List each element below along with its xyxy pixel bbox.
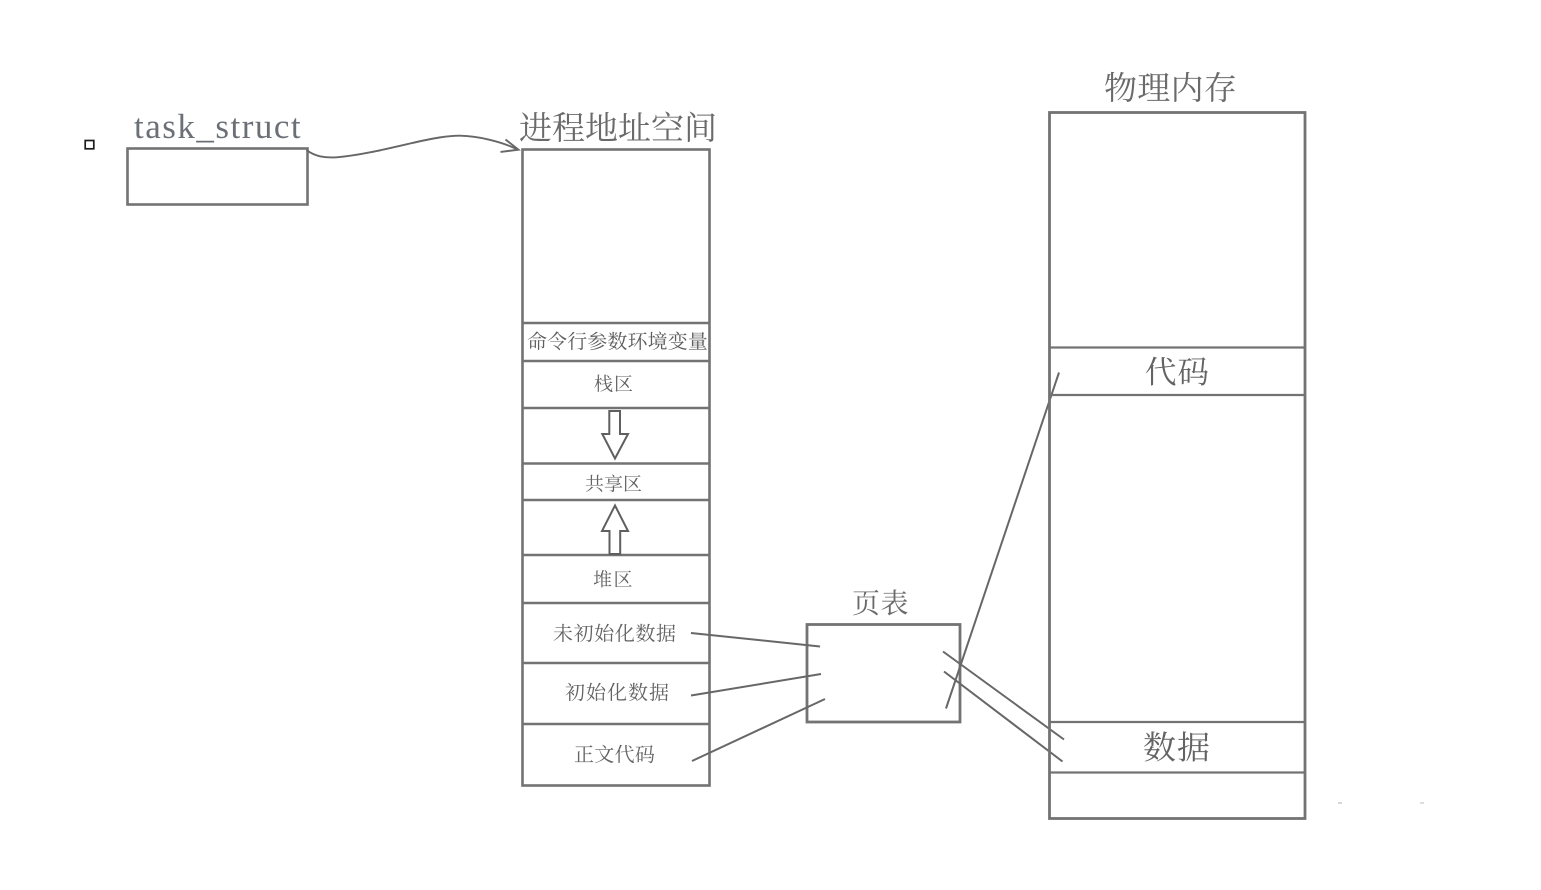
svg-text:task_struct: task_struct xyxy=(134,107,302,146)
